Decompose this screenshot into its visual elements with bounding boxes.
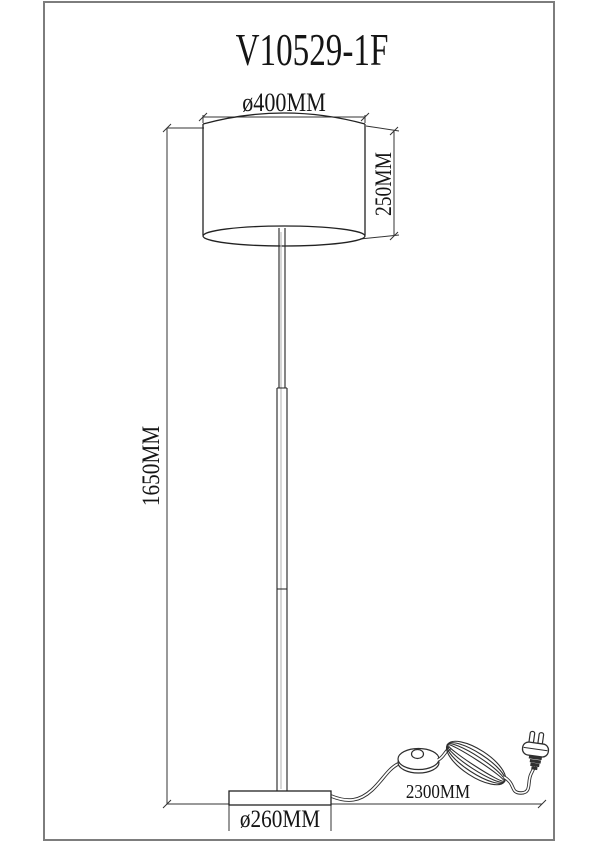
lamp-pole [277,228,287,792]
base-diameter-label: ø260MM [195,806,365,834]
model-number-title: V10529-1F [168,26,456,74]
shade-diameter-label: ø400MM [199,88,369,118]
lamp-base [229,791,331,805]
lamp-shade [203,113,365,246]
lamp-height-label: 1650MM [139,407,165,526]
dimension-lines [163,113,546,831]
plug-cord-grip [527,755,542,770]
power-plug [520,730,551,771]
foot-switch [398,749,439,774]
floor-lamp-technical-drawing [0,0,600,849]
shade-height-label: 250MM [371,133,397,235]
cord-length-label: 2300MM [353,780,523,804]
